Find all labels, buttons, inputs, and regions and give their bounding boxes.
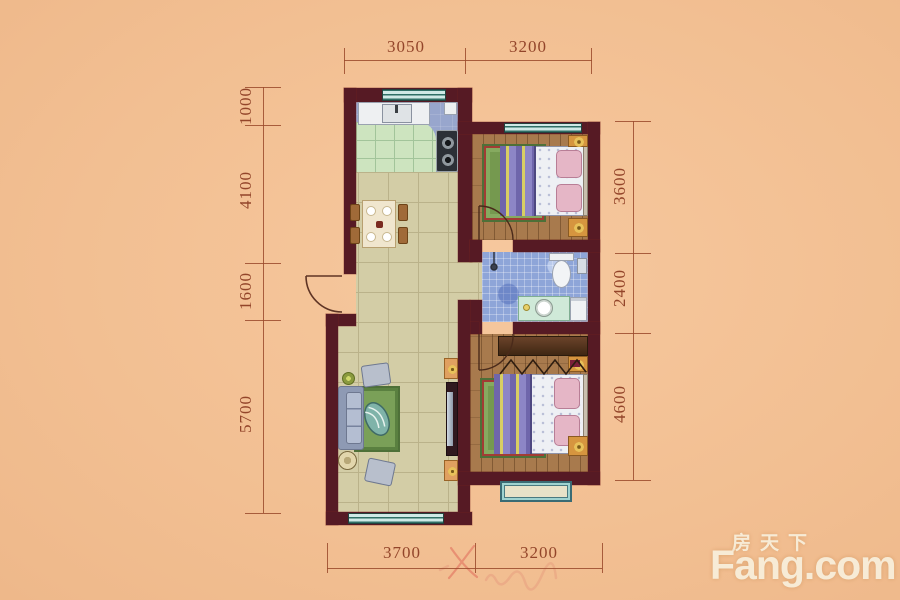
dim-label-left-2: 4100 [237, 160, 255, 220]
fang-watermark-english: Fang.com [710, 542, 896, 589]
bedroom1-door-swing [479, 206, 513, 240]
dim-label-left-1: 1000 [237, 76, 255, 136]
fang-watermark: 房天下 Fang.com [710, 526, 900, 592]
dim-line-bottom [327, 568, 602, 569]
shower-icon [491, 252, 497, 270]
handwritten-x-mark [449, 546, 477, 578]
dim-line-right [633, 121, 634, 480]
dim-tick [465, 48, 466, 74]
wardrobe-hanger-symbol [500, 360, 586, 374]
coffee-table [360, 399, 394, 439]
dim-label-left-4: 5700 [237, 384, 255, 444]
dim-tick [602, 543, 603, 573]
dim-label-right-2: 2400 [611, 258, 629, 318]
dim-tick [615, 333, 651, 334]
floorplan-image: 3050 3200 3700 3200 1000 4100 1600 5700 … [0, 0, 900, 600]
dim-tick [591, 48, 592, 74]
dim-line-top [344, 60, 592, 61]
dim-label-bottom-1: 3700 [372, 544, 432, 562]
dim-label-right-3: 4600 [611, 374, 629, 434]
dim-tick [615, 480, 651, 481]
entry-door-swing [306, 276, 342, 312]
dim-label-top-2: 3200 [498, 38, 558, 56]
dim-tick [245, 513, 281, 514]
dim-tick [344, 48, 345, 74]
dim-label-right-1: 3600 [611, 156, 629, 216]
dim-line-left [263, 87, 264, 513]
dim-label-left-3: 1600 [237, 261, 255, 321]
dim-label-bottom-2: 3200 [509, 544, 569, 562]
dim-tick [615, 253, 651, 254]
overlay-graphics [0, 0, 900, 600]
dim-tick [615, 121, 651, 122]
dim-label-top-1: 3050 [376, 38, 436, 56]
dim-tick [475, 543, 476, 573]
dim-tick [327, 543, 328, 573]
